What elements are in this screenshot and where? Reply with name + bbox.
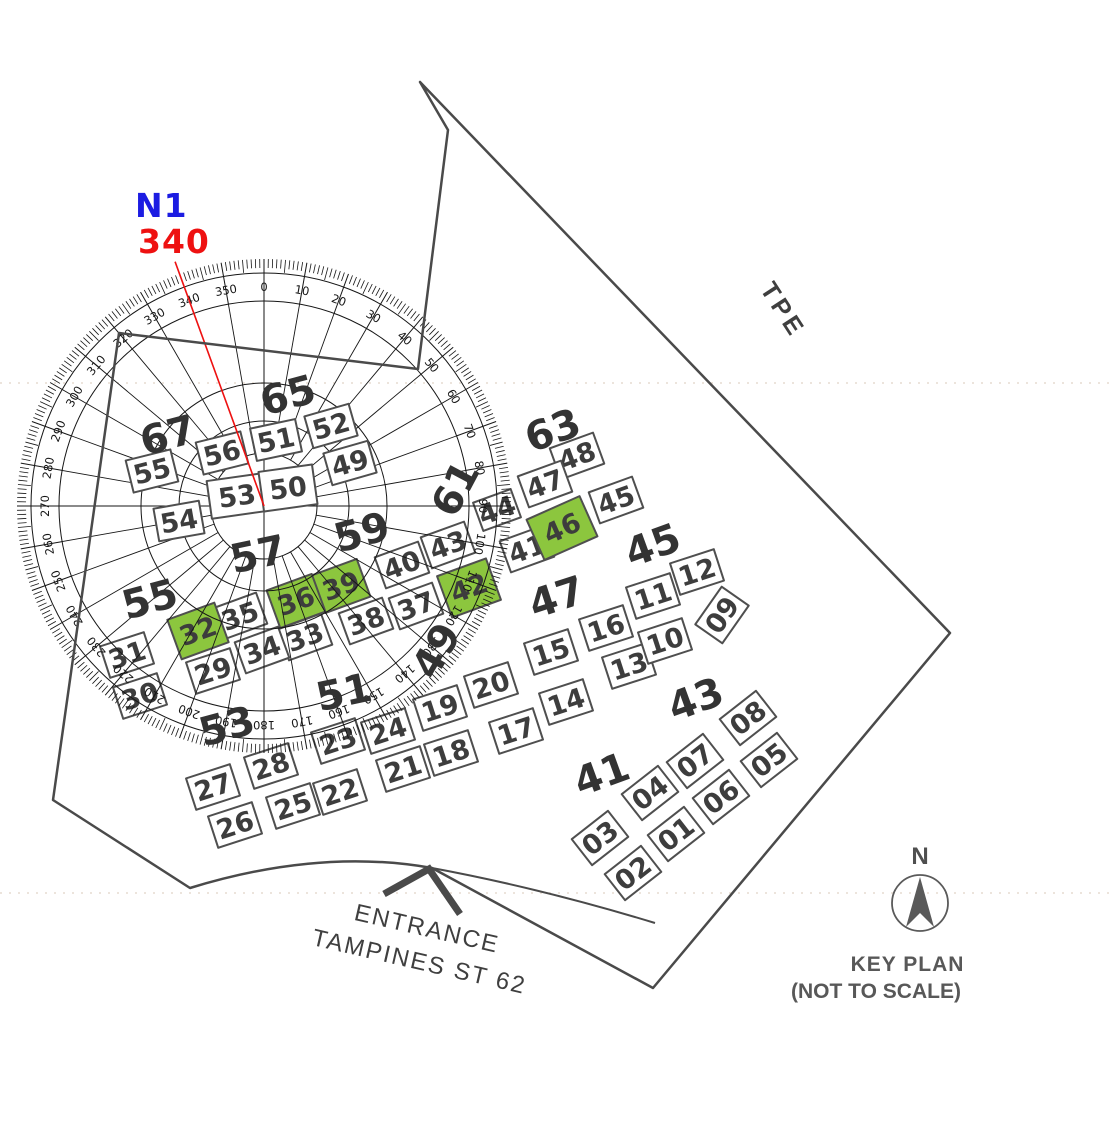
block-56: 56 [196,431,249,474]
degree-label: 90 [476,499,490,514]
block-26: 26 [208,802,262,848]
street-label-51: 51 [312,665,376,722]
degree-label: 280 [40,456,58,480]
block-23: 23 [311,718,365,764]
block-01: 01 [648,807,705,861]
degree-label: 250 [48,568,69,593]
block-49: 49 [323,441,376,485]
degree-label: 310 [84,352,109,378]
block-15: 15 [524,629,578,675]
block-21: 21 [376,746,430,792]
degree-label: 320 [110,326,136,351]
block-11: 11 [626,573,680,619]
block-17: 17 [489,708,543,754]
block-34: 34 [235,627,290,674]
block-19: 19 [413,685,467,731]
site-plan-canvas: 4847454441464340423936383735323334293130… [0,0,1116,1132]
block-05: 05 [741,733,798,787]
key-plan-title: KEY PLAN [810,953,1005,977]
block-20: 20 [464,662,518,708]
block-50: 50 [258,464,317,511]
block-09: 09 [695,587,748,644]
block-53: 53 [207,473,268,518]
degree-label: 240 [63,602,86,628]
bearing-value-label: 340 [138,222,210,261]
degree-label: 330 [141,305,167,328]
block-54: 54 [153,501,204,541]
degree-label: 40 [395,328,415,348]
degree-label: 10 [294,282,311,298]
degree-label: 270 [38,495,52,517]
key-plan-subtitle: (NOT TO SCALE) [770,980,982,1004]
degree-label: 170 [290,713,314,731]
block-10: 10 [638,618,692,664]
north-letter: N [900,843,940,871]
block-47: 47 [518,461,573,508]
block-24: 24 [361,708,415,754]
street-label-43: 43 [662,669,730,731]
block-18: 18 [424,730,478,776]
block-14: 14 [539,679,593,725]
degree-label: 30 [364,307,384,326]
street-label-57: 57 [226,527,290,584]
block-number: 53 [216,479,258,515]
north-arrow-icon [892,875,948,931]
degree-label: 300 [63,383,86,409]
degree-label: 50 [422,355,442,375]
degree-label: 20 [330,291,349,309]
block-number: 50 [267,471,309,507]
degree-label: 350 [214,282,238,300]
street-label-67: 67 [135,407,201,466]
degree-label: 0 [260,280,267,294]
degree-label: 290 [48,418,69,443]
degree-label: 100 [471,532,489,556]
block-number: 54 [158,503,200,540]
degree-label: 70 [461,422,479,441]
block-08: 08 [720,691,777,745]
block-45: 45 [589,477,644,524]
degree-label: 260 [40,532,58,556]
block-27: 27 [186,764,240,810]
block-25: 25 [266,783,320,829]
street-label-53: 53 [194,698,260,757]
north-annotation-label: N1 [135,186,188,225]
block-03: 03 [572,811,629,865]
block-43: 43 [421,522,476,569]
degree-label: 60 [444,387,463,407]
block-22: 22 [313,769,367,815]
